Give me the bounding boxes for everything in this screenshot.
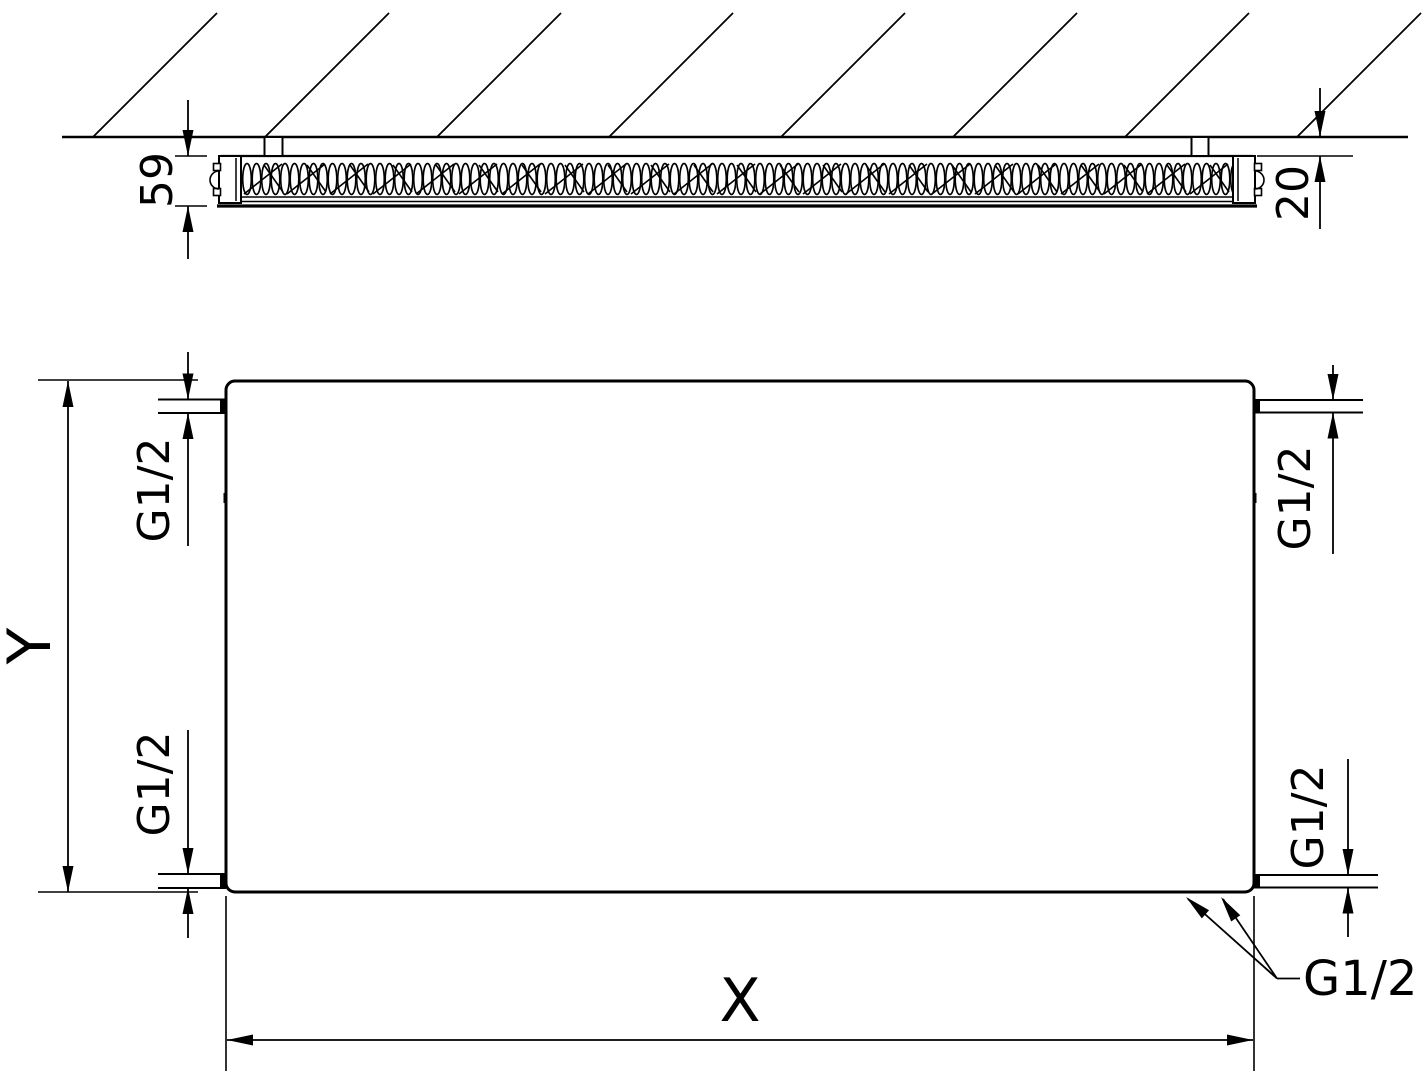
wall-bracket-right [1192,137,1209,156]
right-edge-mark [1253,493,1257,503]
connection-size-callout-label: G1/2 [1303,955,1417,1003]
convector-fins-folds [242,162,1232,196]
connection-stub-bottom-right [1254,875,1378,888]
connection-dimension-bottom-left [183,730,194,938]
connection-size-label-bottom-right: G1/2 [1287,765,1331,870]
wall-hatching [93,13,1421,137]
connection-dimension-top-left [183,352,194,546]
connection-size-label-top-right: G1/2 [1274,446,1318,551]
left-end-cap [210,156,241,203]
radiator-side-view [210,137,1264,206]
technical-drawing: 59 20 Y X G1/2 G1/2 G1/2 G1/2 G1/2 [0,0,1425,1077]
drawing-canvas [0,0,1425,1077]
height-dimension-label: Y [0,628,60,665]
wall-distance-dimension-label: 20 [1272,165,1316,221]
right-end-cap [1233,156,1264,203]
front-panel-outline [226,381,1254,892]
connection-stub-bottom-left [158,874,226,888]
connection-callout-leader [1186,897,1300,979]
connection-size-label-top-left: G1/2 [133,438,177,543]
width-dimension-label: X [719,971,760,1031]
radiator-front-view [158,381,1378,892]
connection-dimension-bottom-right [1343,759,1354,937]
connection-stub-top-left [158,400,226,414]
connection-dimension-top-right [1328,365,1339,554]
connection-size-label-bottom-left: G1/2 [133,732,177,837]
left-edge-mark [224,493,228,503]
connection-stub-top-right [1254,400,1363,413]
depth-dimension-label: 59 [136,152,180,208]
wall-bracket-left [265,137,283,156]
